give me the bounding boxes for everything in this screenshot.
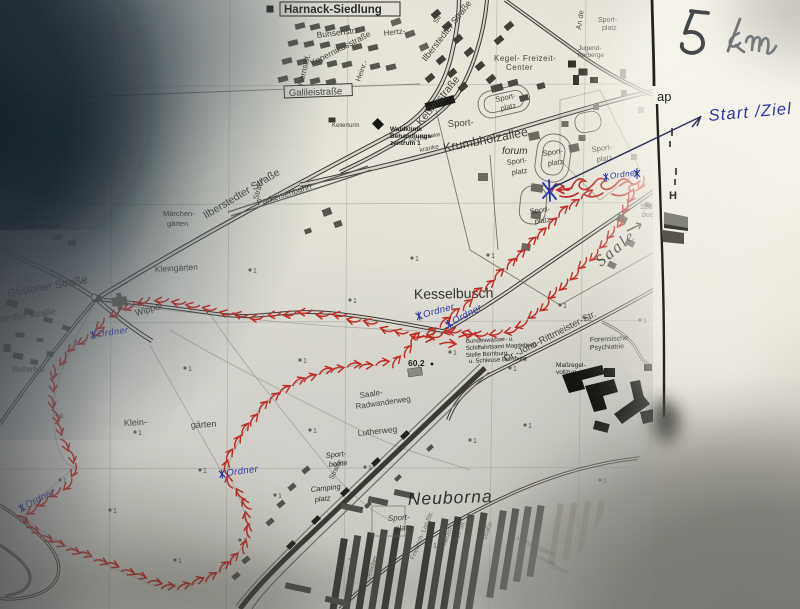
svg-text:H: H bbox=[669, 190, 677, 202]
svg-text:1: 1 bbox=[203, 468, 207, 475]
svg-text:ap: ap bbox=[657, 89, 671, 104]
svg-text:platz: platz bbox=[394, 523, 412, 533]
svg-text:Center: Center bbox=[506, 63, 533, 72]
svg-text:Sport-: Sport- bbox=[447, 117, 474, 130]
svg-text:1: 1 bbox=[368, 465, 372, 472]
svg-text:platz: platz bbox=[313, 493, 331, 504]
svg-text:Kesselbusch: Kesselbusch bbox=[414, 285, 494, 302]
svg-text:Jugend-: Jugend- bbox=[578, 45, 602, 52]
svg-text:1: 1 bbox=[278, 493, 282, 500]
svg-text:platz: platz bbox=[602, 25, 617, 32]
svg-text:1: 1 bbox=[433, 543, 437, 550]
svg-text:herberge: herberge bbox=[578, 52, 604, 59]
svg-text:Sport-: Sport- bbox=[598, 17, 618, 24]
svg-text:1: 1 bbox=[563, 303, 567, 310]
svg-text:Sport-: Sport- bbox=[388, 512, 411, 523]
svg-text:1: 1 bbox=[491, 253, 495, 260]
svg-text:Kegel- Freizeit-: Kegel- Freizeit- bbox=[494, 54, 556, 63]
